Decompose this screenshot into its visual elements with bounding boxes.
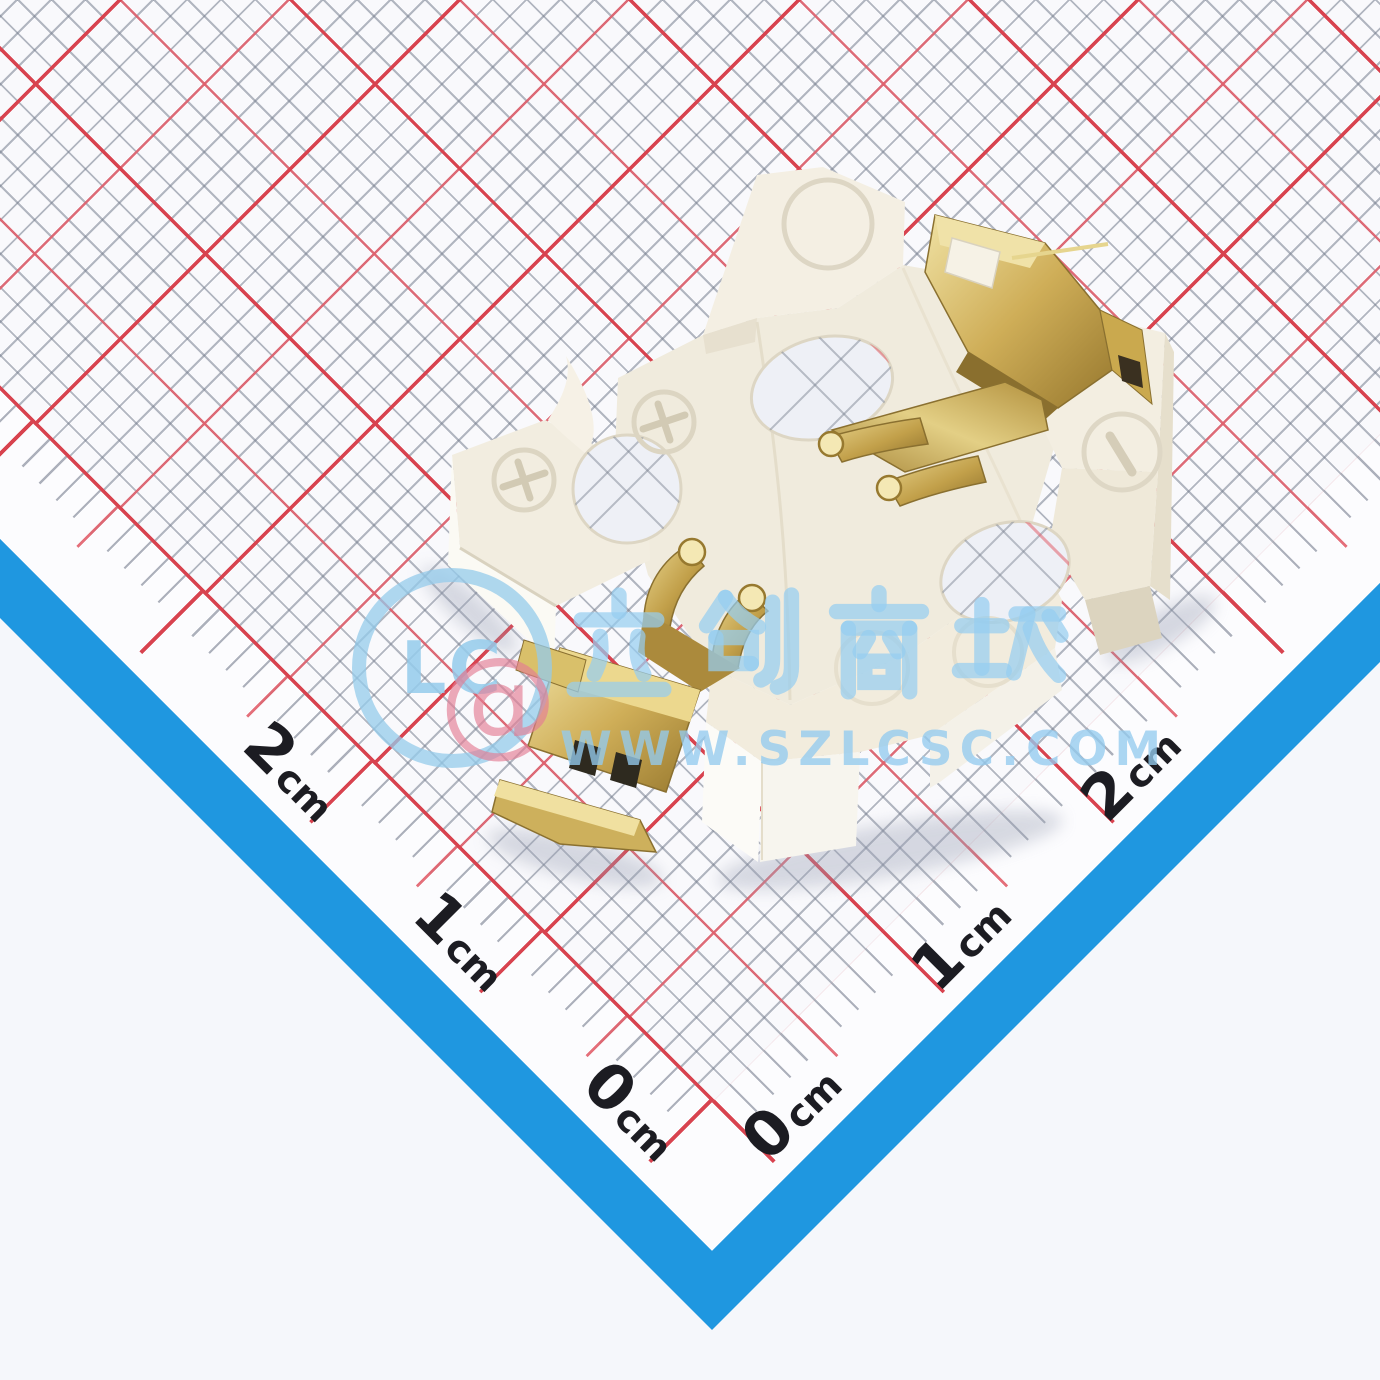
photo-stage: 2cm 1cm 0cm 0cm 1cm 2cm [0, 0, 1380, 1380]
component-svg [0, 0, 1380, 1380]
battery-holder-photo [0, 0, 1380, 1380]
